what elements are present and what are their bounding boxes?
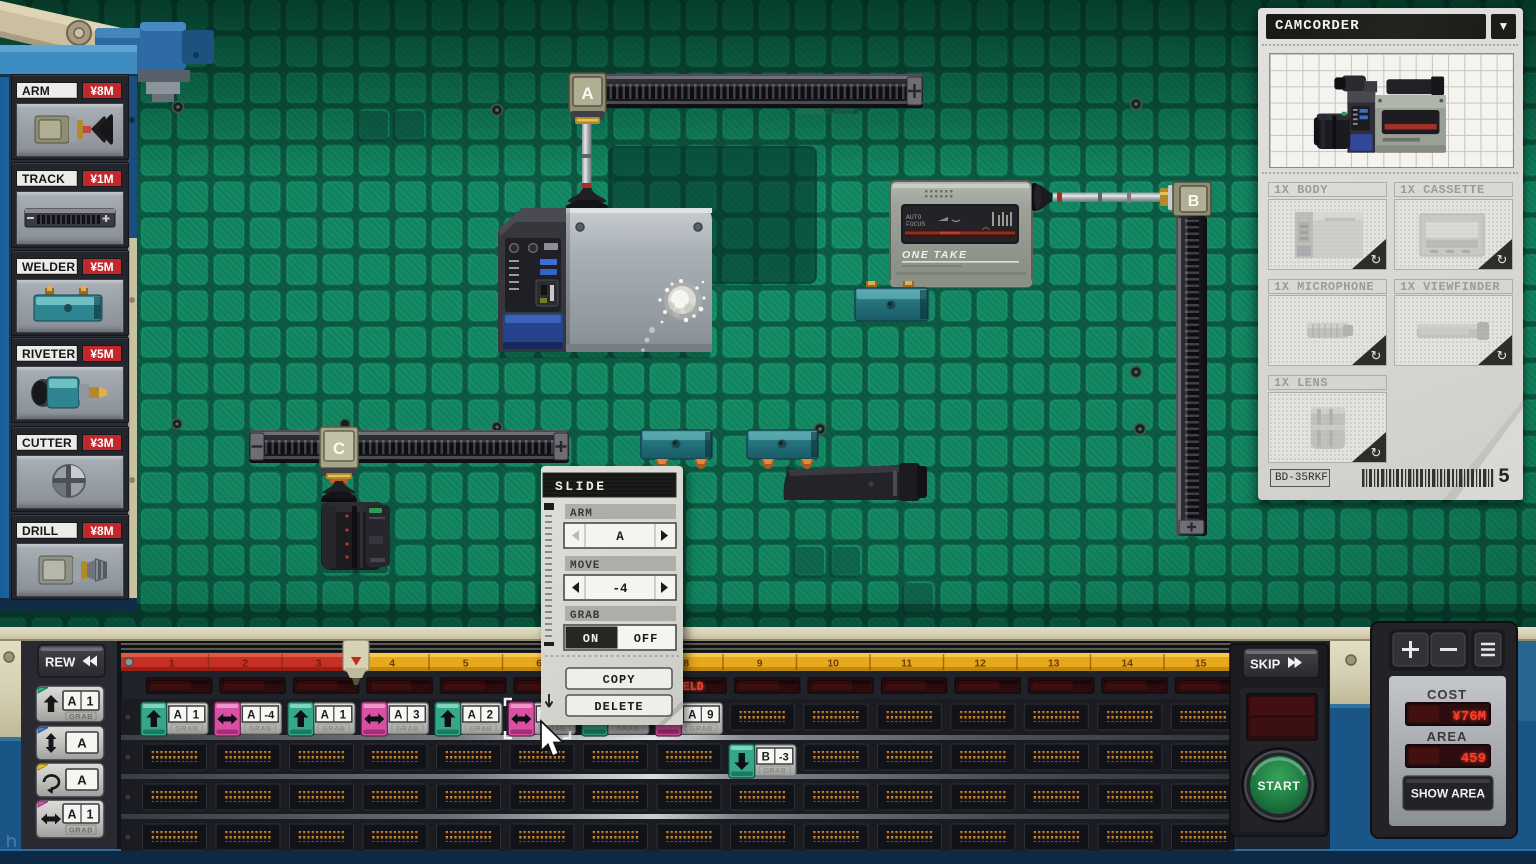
svg-text:5: 5 bbox=[463, 658, 469, 670]
svg-text:GRAB: GRAB bbox=[690, 724, 713, 733]
svg-text:AREA: AREA bbox=[1427, 729, 1468, 744]
svg-text:1: 1 bbox=[193, 710, 200, 722]
svg-text:GRAB: GRAB bbox=[175, 724, 198, 733]
svg-text:4: 4 bbox=[389, 658, 395, 670]
svg-text:COST: COST bbox=[1427, 687, 1467, 702]
svg-text:1: 1 bbox=[87, 808, 94, 822]
svg-text:8: 8 bbox=[683, 658, 689, 670]
svg-text:GRAB: GRAB bbox=[570, 610, 600, 622]
svg-text:GRAB: GRAB bbox=[763, 766, 786, 775]
svg-text:9: 9 bbox=[757, 658, 763, 670]
svg-text:AUTO: AUTO bbox=[906, 214, 922, 221]
svg-text:REW: REW bbox=[45, 655, 76, 670]
svg-text:B: B bbox=[762, 752, 770, 764]
svg-text:-3: -3 bbox=[779, 752, 789, 764]
svg-text:1: 1 bbox=[169, 658, 175, 670]
svg-text:14: 14 bbox=[1121, 658, 1133, 670]
svg-text:A: A bbox=[581, 84, 593, 103]
svg-text:A: A bbox=[321, 710, 329, 722]
svg-text:A: A bbox=[616, 530, 624, 544]
svg-text:A: A bbox=[394, 710, 402, 722]
svg-text:SHOW AREA: SHOW AREA bbox=[1411, 787, 1486, 801]
svg-text:10: 10 bbox=[827, 658, 839, 670]
svg-text:A: A bbox=[174, 710, 182, 722]
svg-text:GRAB: GRAB bbox=[249, 724, 272, 733]
svg-text:GRAB: GRAB bbox=[616, 724, 639, 733]
svg-text:COPY: COPY bbox=[603, 673, 636, 687]
svg-text:A: A bbox=[688, 710, 696, 722]
svg-text:1: 1 bbox=[340, 710, 347, 722]
svg-text:2: 2 bbox=[487, 710, 493, 722]
svg-text:9: 9 bbox=[707, 710, 713, 722]
svg-text:¥76M: ¥76M bbox=[1452, 709, 1486, 725]
svg-text:11: 11 bbox=[901, 658, 912, 670]
svg-text:A: A bbox=[468, 710, 476, 722]
svg-text:SLIDE: SLIDE bbox=[555, 479, 607, 494]
svg-text:1: 1 bbox=[87, 695, 94, 709]
svg-text:ONE TAKE: ONE TAKE bbox=[902, 249, 967, 261]
svg-text:C: C bbox=[333, 439, 345, 458]
svg-text:3: 3 bbox=[316, 658, 322, 670]
svg-text:-4: -4 bbox=[612, 582, 628, 596]
svg-text:GRAB: GRAB bbox=[322, 724, 345, 733]
svg-text:A: A bbox=[77, 736, 87, 751]
svg-text:GRAB: GRAB bbox=[396, 724, 419, 733]
svg-text:12: 12 bbox=[974, 658, 986, 670]
svg-text:MOVE: MOVE bbox=[570, 560, 600, 572]
svg-text:459: 459 bbox=[1461, 751, 1486, 767]
svg-text:3: 3 bbox=[413, 710, 419, 722]
svg-text:GRAB: GRAB bbox=[469, 724, 492, 733]
svg-text:A: A bbox=[67, 695, 76, 709]
svg-text:A: A bbox=[67, 808, 76, 822]
svg-text:OFF: OFF bbox=[634, 632, 659, 646]
svg-text:DELETE: DELETE bbox=[594, 700, 643, 714]
svg-text:2: 2 bbox=[242, 658, 248, 670]
svg-text:A: A bbox=[247, 710, 255, 722]
svg-text:13: 13 bbox=[1048, 658, 1060, 670]
svg-text:GRAB: GRAB bbox=[69, 826, 93, 835]
svg-text:A: A bbox=[77, 773, 87, 788]
svg-text:GRAB: GRAB bbox=[69, 712, 93, 721]
svg-text:SKIP: SKIP bbox=[1250, 657, 1281, 672]
svg-text:15: 15 bbox=[1195, 658, 1207, 670]
svg-text:B: B bbox=[1188, 193, 1200, 210]
svg-text:ON: ON bbox=[583, 632, 599, 646]
svg-text:START: START bbox=[1257, 779, 1300, 793]
svg-text:FOCUS: FOCUS bbox=[906, 221, 925, 228]
svg-text:-4: -4 bbox=[264, 710, 275, 722]
svg-text:ARM: ARM bbox=[570, 508, 593, 520]
